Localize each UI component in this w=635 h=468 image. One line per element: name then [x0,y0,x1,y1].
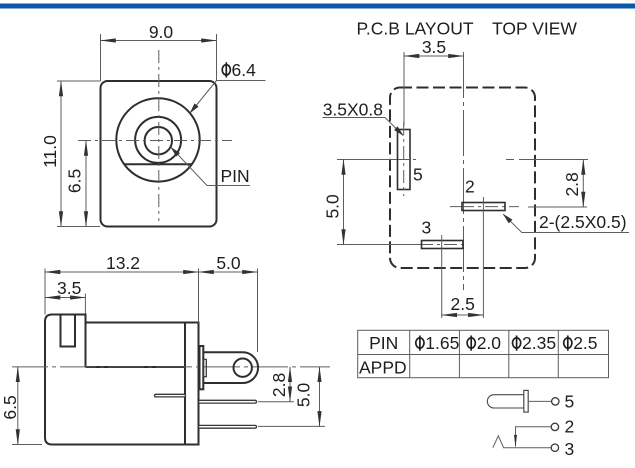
svg-text:3.5: 3.5 [422,37,446,57]
svg-text:3: 3 [565,439,575,459]
svg-text:2: 2 [565,417,575,437]
svg-text:6.4: 6.4 [232,60,257,80]
svg-text:2.5: 2.5 [451,294,475,314]
svg-text:1.65: 1.65 [425,333,459,353]
svg-text:2-(2.5X0.5): 2-(2.5X0.5) [539,212,627,232]
svg-text:TOP VIEW: TOP VIEW [492,19,577,39]
svg-text:PIN: PIN [221,166,250,186]
svg-text:5: 5 [565,392,575,412]
svg-text:5.0: 5.0 [216,253,241,273]
svg-text:2.8: 2.8 [562,172,582,196]
svg-text:P.C.B LAYOUT: P.C.B LAYOUT [357,19,474,39]
svg-text:2.5: 2.5 [573,333,597,353]
svg-text:11.0: 11.0 [40,135,60,168]
svg-text:2.0: 2.0 [477,333,502,353]
svg-text:9.0: 9.0 [149,22,174,42]
svg-text:6.5: 6.5 [0,395,20,419]
svg-text:2.8: 2.8 [269,373,289,397]
svg-text:5: 5 [413,165,423,185]
svg-text:PIN: PIN [369,333,398,353]
svg-text:2: 2 [465,177,475,197]
svg-text:6.5: 6.5 [65,169,85,193]
svg-text:5.0: 5.0 [323,194,343,219]
svg-text:3: 3 [422,218,432,238]
svg-text:APPD: APPD [359,358,407,378]
svg-text:3.5: 3.5 [57,278,81,298]
svg-text:13.2: 13.2 [106,253,140,273]
svg-text:2.35: 2.35 [522,333,556,353]
svg-text:5.0: 5.0 [294,383,314,408]
svg-text:3.5X0.8: 3.5X0.8 [323,100,383,120]
